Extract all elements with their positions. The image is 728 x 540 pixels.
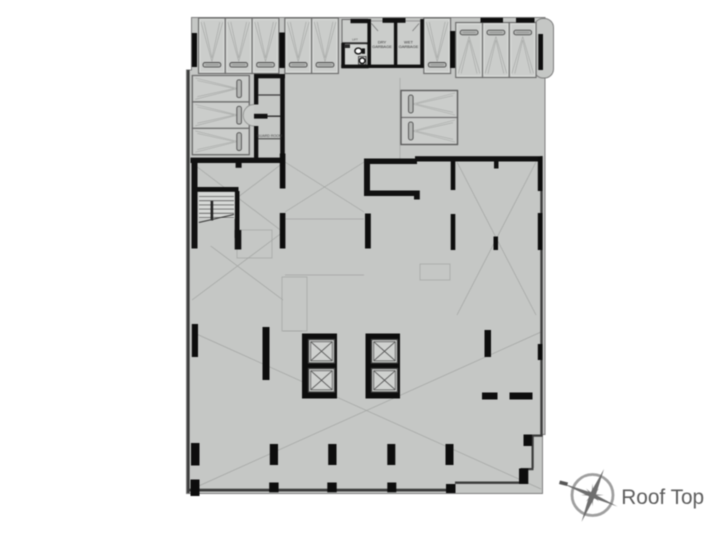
- svg-text:LIFT: LIFT: [352, 38, 358, 42]
- svg-text:GARBAGE: GARBAGE: [399, 44, 419, 49]
- svg-text:GUARD ROOM: GUARD ROOM: [257, 134, 282, 138]
- svg-text:Roof Top: Roof Top: [621, 486, 704, 509]
- svg-text:GARBAGE: GARBAGE: [372, 44, 392, 49]
